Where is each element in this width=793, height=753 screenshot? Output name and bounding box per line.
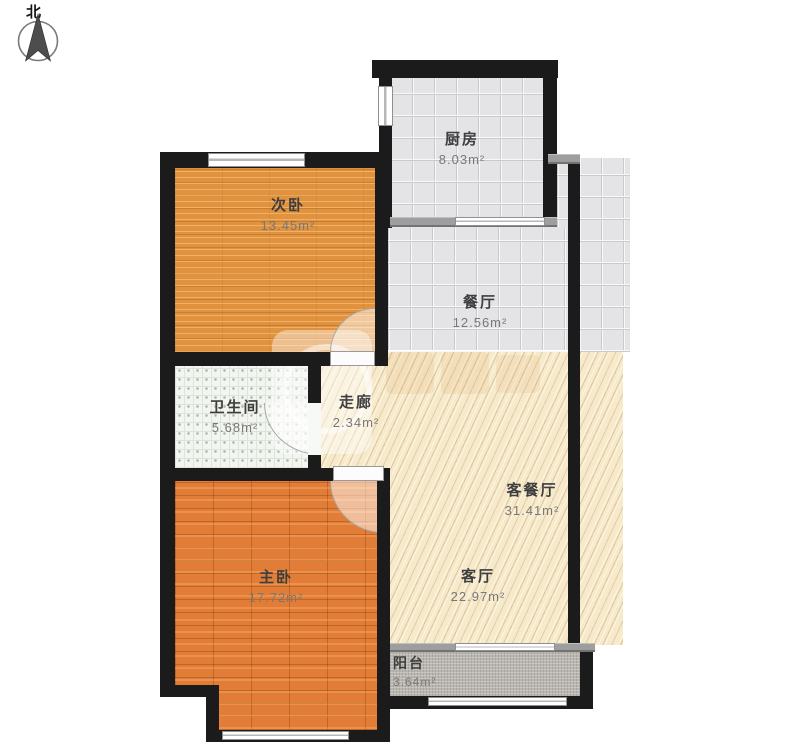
kitchen-sliding-door bbox=[455, 217, 545, 226]
wall bbox=[374, 352, 388, 366]
living-floor-right-strip bbox=[580, 352, 623, 645]
wall bbox=[543, 60, 557, 227]
wall bbox=[160, 152, 175, 697]
wall bbox=[160, 468, 334, 481]
wall bbox=[160, 352, 331, 366]
wall bbox=[375, 168, 388, 352]
compass: 北 bbox=[6, 0, 68, 70]
kitchen-window bbox=[378, 86, 393, 126]
wall bbox=[372, 60, 558, 78]
balcony-window bbox=[428, 697, 567, 706]
balcony-sliding-door bbox=[455, 643, 555, 651]
master-bedroom-window bbox=[222, 731, 349, 740]
floor-plan: 北 bbox=[0, 0, 793, 753]
wall bbox=[308, 352, 321, 403]
balcony-floor bbox=[390, 652, 580, 697]
bathroom-door-opening bbox=[308, 403, 321, 455]
master-bedroom-door-sill bbox=[333, 466, 384, 481]
wall bbox=[580, 645, 593, 709]
second-bedroom-door-sill bbox=[330, 351, 375, 366]
floor-transition-line bbox=[388, 350, 568, 352]
north-arrow-icon bbox=[10, 13, 66, 69]
wall bbox=[568, 158, 580, 645]
kitchen-floor bbox=[390, 75, 543, 227]
second-bedroom-window bbox=[208, 153, 305, 167]
connector-beam bbox=[548, 154, 580, 164]
dining-floor bbox=[388, 227, 568, 352]
